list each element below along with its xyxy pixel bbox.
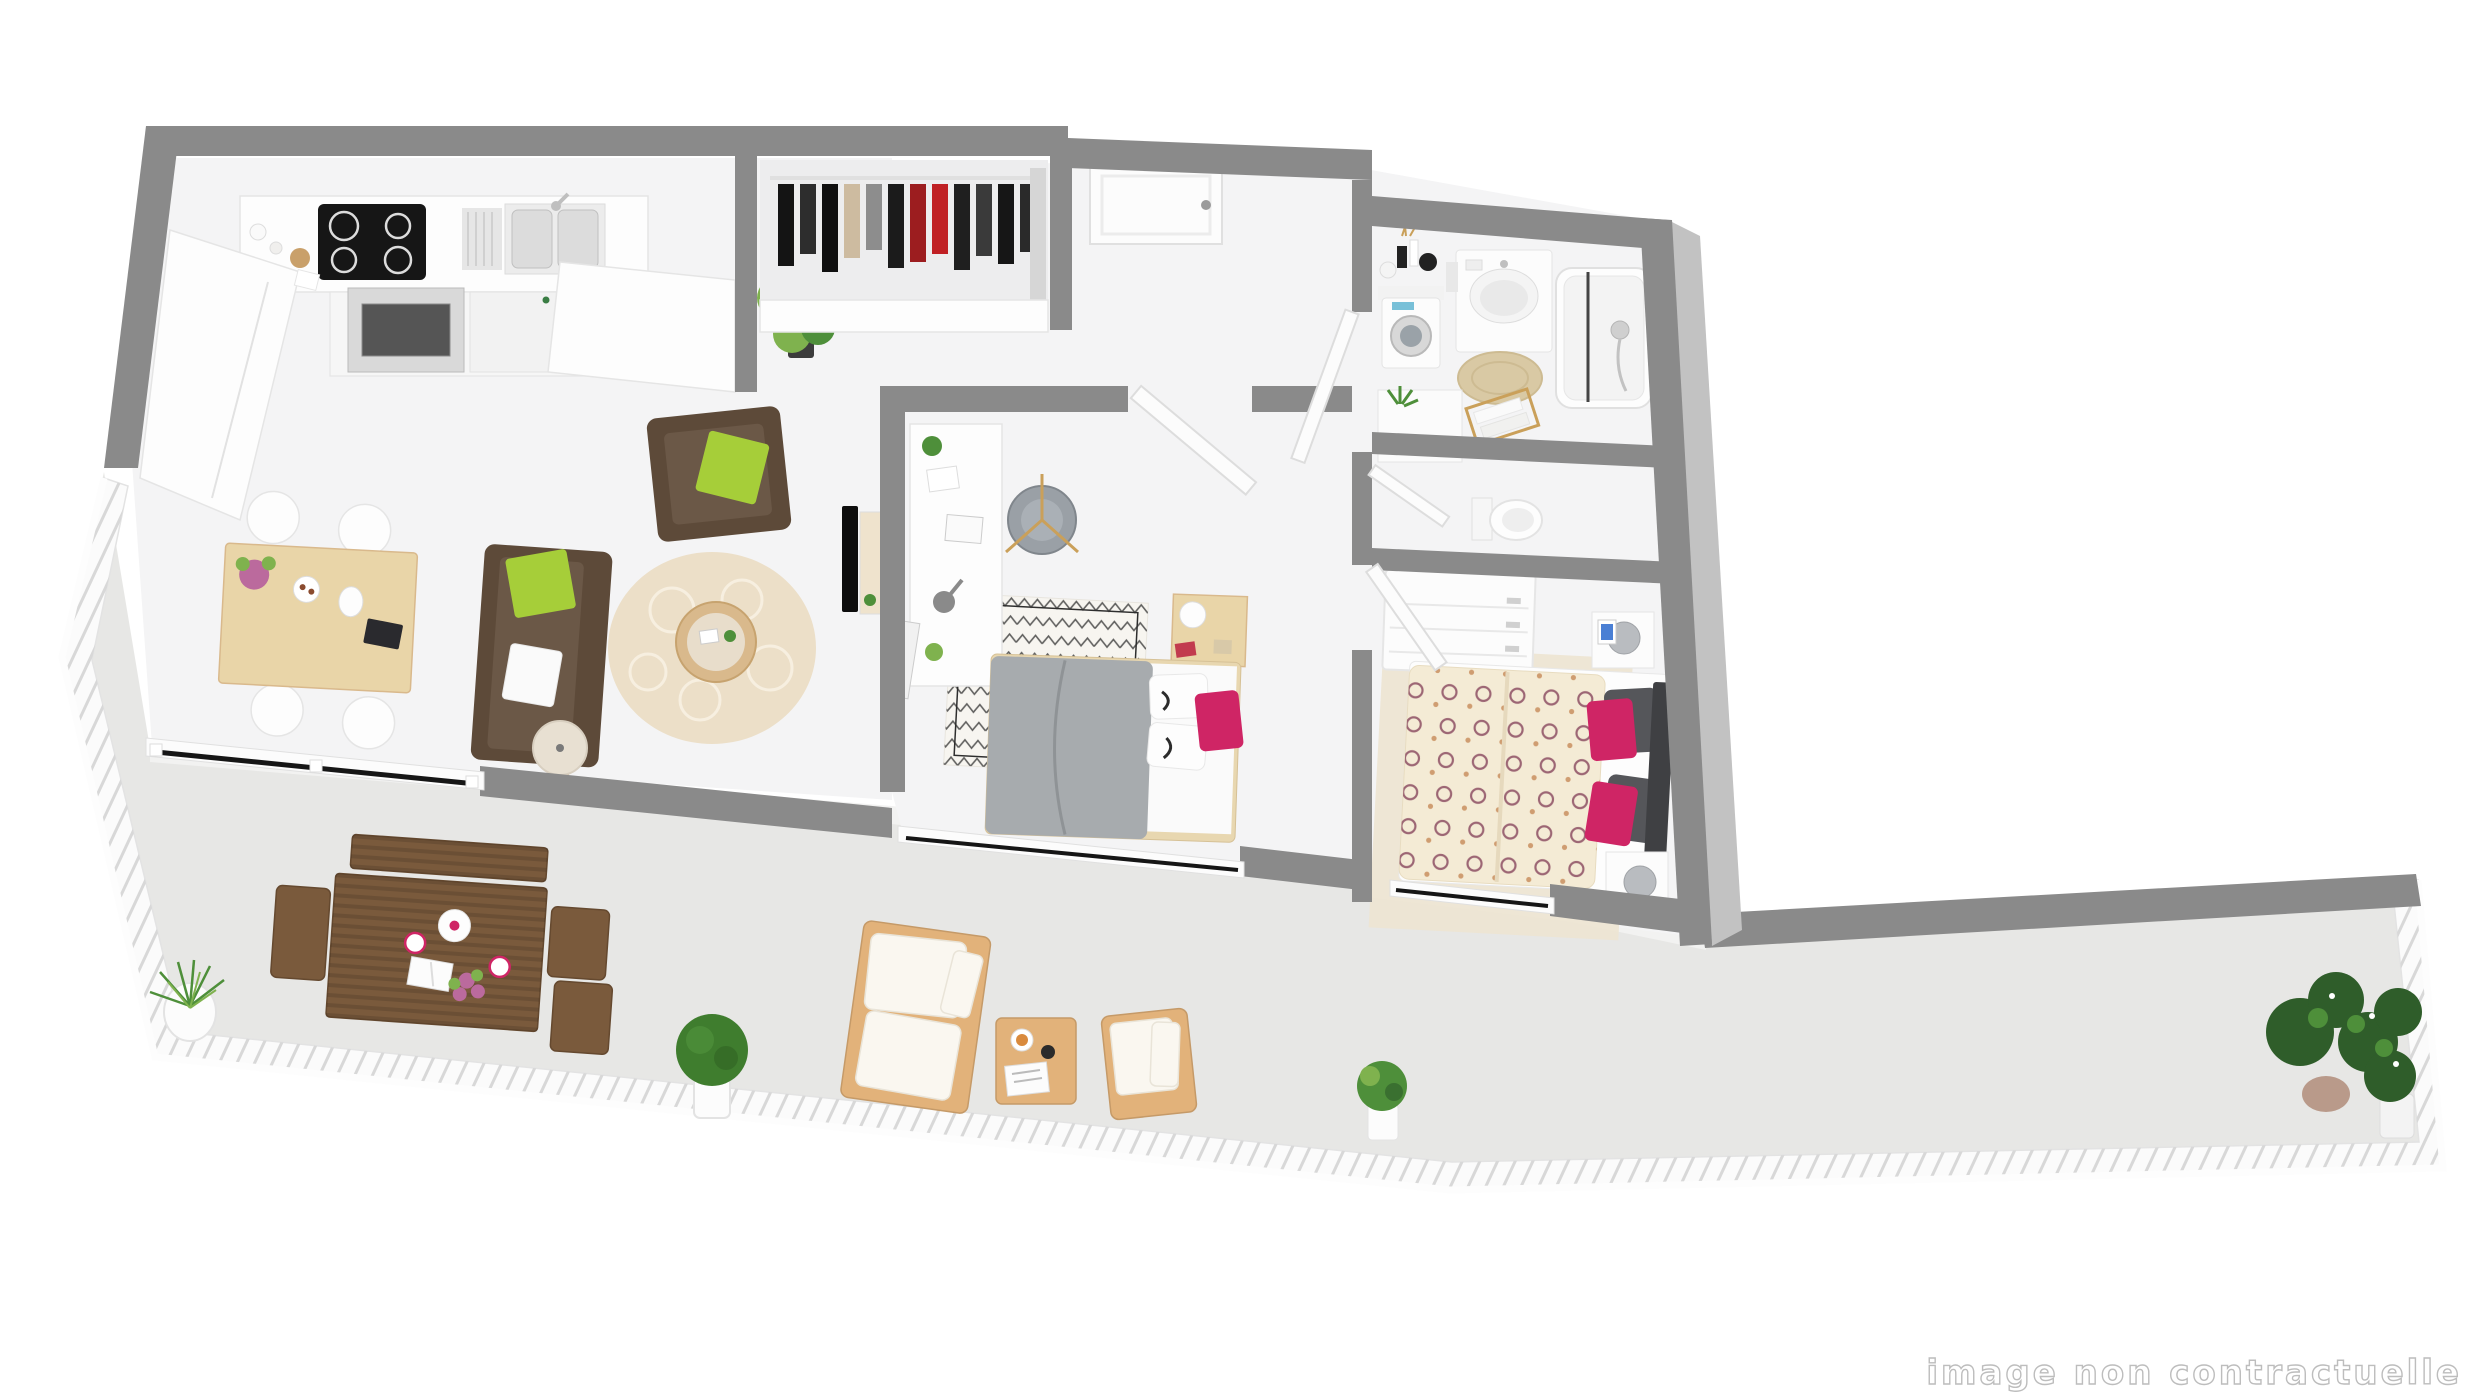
pink-cushion bbox=[1586, 698, 1637, 762]
magazine bbox=[1175, 641, 1197, 658]
papers bbox=[927, 466, 960, 492]
outdoor-chair bbox=[550, 981, 613, 1055]
mug bbox=[1041, 1045, 1055, 1059]
wc bbox=[1472, 498, 1542, 540]
door-handle bbox=[1201, 200, 1211, 210]
drawer-handle bbox=[1505, 646, 1519, 652]
coffee-table bbox=[676, 602, 756, 682]
drawer-handle bbox=[1507, 598, 1521, 604]
desk bbox=[910, 424, 1002, 686]
hall-bathroom-wall-upper bbox=[1352, 180, 1372, 312]
back-pillow bbox=[1150, 1022, 1180, 1087]
closet-mirror-panel bbox=[1030, 168, 1046, 320]
outdoor-chair bbox=[270, 885, 330, 981]
wood-bowl bbox=[290, 248, 310, 268]
counter-canister bbox=[250, 224, 266, 240]
closet-low-cabinet bbox=[760, 300, 1048, 332]
tv-unit bbox=[842, 506, 882, 614]
sink-basin-right bbox=[558, 210, 598, 268]
top-wall bbox=[146, 126, 1068, 156]
small-plant bbox=[925, 643, 943, 661]
green-cushion bbox=[505, 549, 576, 619]
outdoor-armchair bbox=[1101, 1008, 1197, 1120]
gray-duvet bbox=[985, 656, 1153, 840]
nightstand bbox=[1592, 612, 1654, 668]
terracotta-pot bbox=[2302, 1076, 2350, 1112]
white-cushion bbox=[502, 643, 563, 707]
dishwasher-indicator bbox=[543, 297, 550, 304]
drawer-handle bbox=[1506, 622, 1520, 628]
washer-display bbox=[1392, 302, 1414, 310]
soap-dish bbox=[1466, 260, 1482, 270]
hall-bathroom-wall-lower bbox=[1352, 452, 1372, 565]
oven-window bbox=[362, 304, 450, 356]
bedroom1-top-wall-left bbox=[905, 386, 1128, 412]
deco-plant bbox=[864, 594, 876, 606]
teacup bbox=[489, 956, 510, 977]
counter-jar bbox=[270, 242, 282, 254]
faucet bbox=[1500, 260, 1508, 268]
sink-basin-left bbox=[512, 210, 552, 268]
sphere-lamp bbox=[1179, 601, 1206, 628]
magazine bbox=[1005, 1062, 1050, 1096]
teacup bbox=[404, 932, 425, 953]
magenta-cushion bbox=[1194, 690, 1244, 752]
seat-cushion bbox=[854, 1010, 962, 1102]
desk-plant bbox=[922, 436, 942, 456]
closet-divider-wall bbox=[1050, 156, 1072, 330]
bedroom1-top-wall-right bbox=[1252, 386, 1352, 412]
living-bedroom1-wall bbox=[880, 386, 905, 792]
desk-top bbox=[910, 424, 1002, 686]
notebook bbox=[945, 514, 983, 543]
small-plant bbox=[724, 630, 736, 642]
kitchen-hall-wall bbox=[735, 156, 757, 392]
vanity-sink bbox=[1446, 250, 1552, 352]
hand-towel bbox=[1446, 262, 1458, 292]
hand-shower bbox=[1611, 321, 1629, 339]
floor-plan-canvas: image non contractuelle bbox=[0, 0, 2480, 1395]
gift-box bbox=[1213, 640, 1231, 655]
outdoor-chair bbox=[547, 906, 610, 980]
dishwasher bbox=[470, 292, 562, 372]
kitchen-peninsula bbox=[548, 262, 735, 392]
toilet bbox=[1472, 498, 1542, 540]
books bbox=[699, 629, 719, 644]
floor-plan-render: image non contractuelle bbox=[0, 0, 2480, 1395]
outdoor-sofa bbox=[840, 920, 992, 1114]
watermark-text: image non contractuelle bbox=[1926, 1353, 2462, 1393]
armchair bbox=[646, 405, 792, 542]
front-door bbox=[1090, 166, 1222, 244]
tv-screen bbox=[842, 506, 858, 612]
outdoor-coffee-table bbox=[996, 1018, 1076, 1104]
bathtub bbox=[1556, 268, 1652, 408]
pink-cushion bbox=[1584, 781, 1639, 847]
toilet-tank bbox=[1472, 498, 1492, 540]
washing-machine bbox=[1378, 286, 1444, 368]
